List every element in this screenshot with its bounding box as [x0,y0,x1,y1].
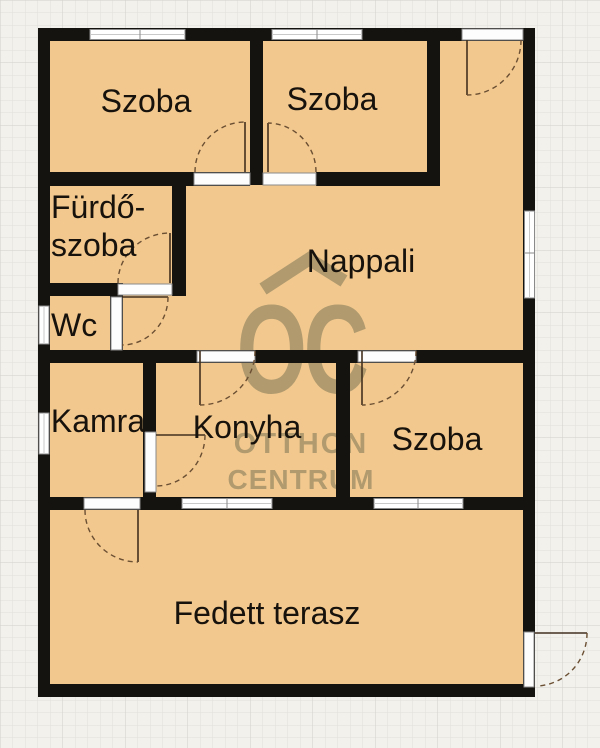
window-kamra-left [39,413,49,454]
window-szoba3-bottom [374,499,463,509]
wall-szoba1-szoba2 [250,38,263,185]
window-szoba2-top [272,30,362,40]
room-label-kamra: Kamra [51,403,145,439]
door-sill-entry [462,29,523,40]
room-label-szoba-top-left: Szoba [101,83,192,119]
window-konyha-bottom [182,499,272,509]
room-label-furdoszoba-line2: szoba [51,227,137,263]
wall-bath-right [172,184,186,296]
window-szoba1-top [90,30,185,40]
door-sill-kamra [145,432,156,492]
room-label-fedett-terasz: Fedett terasz [174,595,361,631]
door-sill-szoba3 [358,351,416,362]
door-sill-konyha [197,351,255,362]
wall-konyha-szoba3 [336,350,350,510]
room-label-konyha: Konyha [193,409,302,445]
door-sill-bathroom [118,284,172,295]
door-sill-szoba1 [194,173,250,185]
watermark: OC OTTHON CENTRUM [228,259,375,495]
wall-szoba2-right [427,38,440,185]
wall-bottom [38,684,535,697]
wall-szoba2-bottom [316,172,440,186]
room-label-szoba-bottom-right: Szoba [392,421,483,457]
door-sill-terrace-right [524,632,534,687]
wall-middle-horizontal [38,350,535,363]
room-label-nappali: Nappali [307,243,416,279]
door-sill-wc [111,297,122,350]
floor-plan-page: OC OTTHON CENTRUM [0,0,600,748]
door-sill-terrace-inner [84,498,140,509]
watermark-line2: CENTRUM [228,464,375,495]
door-sill-szoba2 [263,173,316,185]
room-label-furdoszoba-line1: Fürdő- [51,189,145,225]
room-label-szoba-top-middle: Szoba [287,81,378,117]
window-wc-left [39,306,49,344]
floor-plan: OC OTTHON CENTRUM [0,0,600,748]
room-label-wc: Wc [51,307,97,343]
window-nappali-right [525,211,535,298]
